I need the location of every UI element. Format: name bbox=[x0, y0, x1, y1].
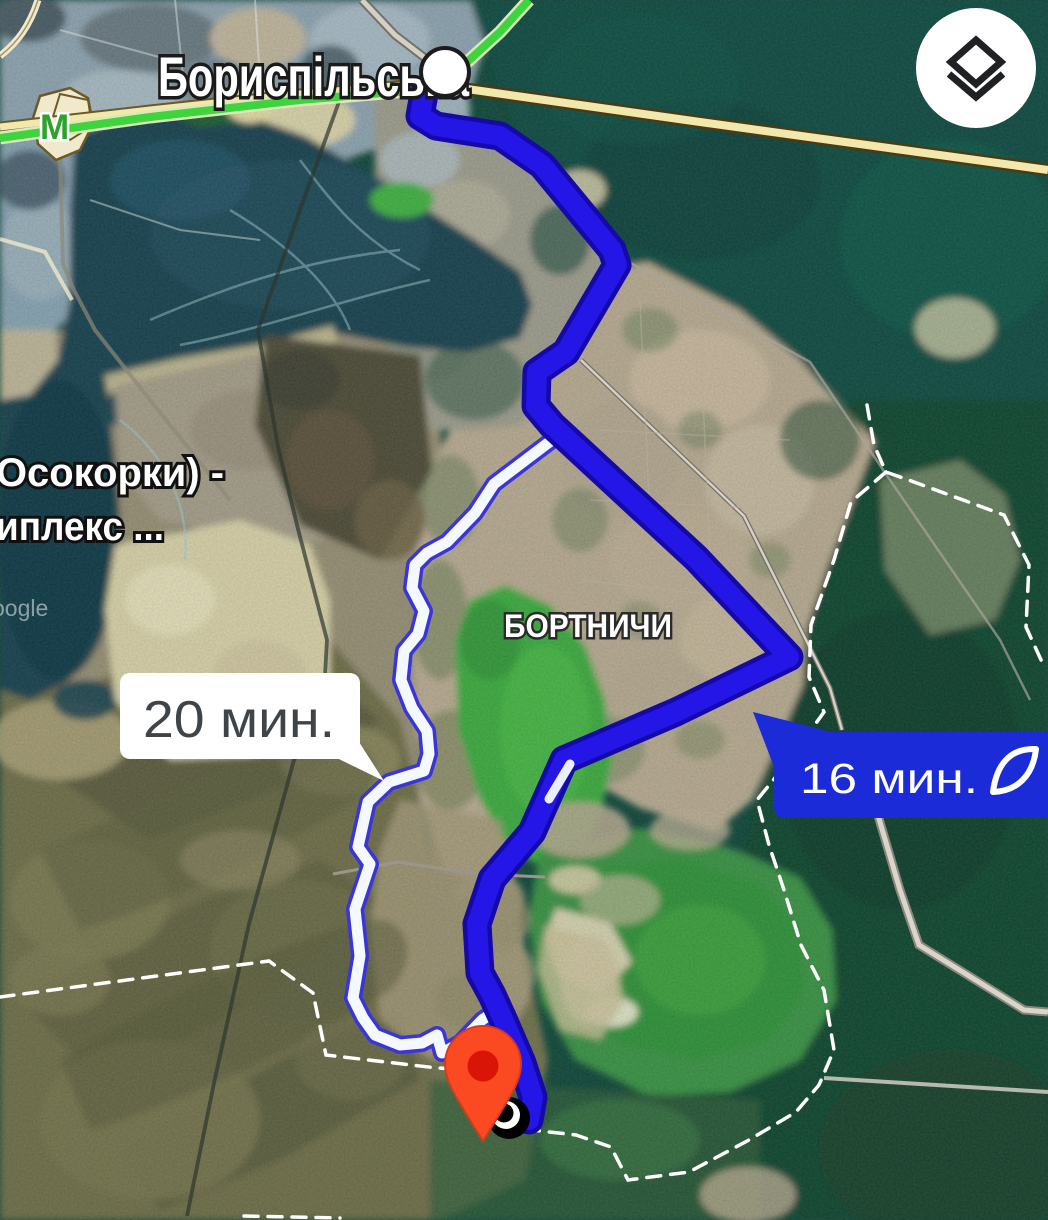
svg-text:Осокорки) -: Осокорки) - bbox=[0, 451, 224, 495]
svg-text:16 мин.: 16 мин. bbox=[800, 755, 978, 803]
svg-text:иплекс ...: иплекс ... bbox=[0, 505, 164, 549]
svg-text:oogle: oogle bbox=[0, 595, 48, 621]
svg-text:М: М bbox=[40, 108, 69, 147]
svg-text:20 мин.: 20 мин. bbox=[143, 691, 335, 749]
svg-text:БОРТНИЧИ: БОРТНИЧИ bbox=[504, 608, 672, 644]
